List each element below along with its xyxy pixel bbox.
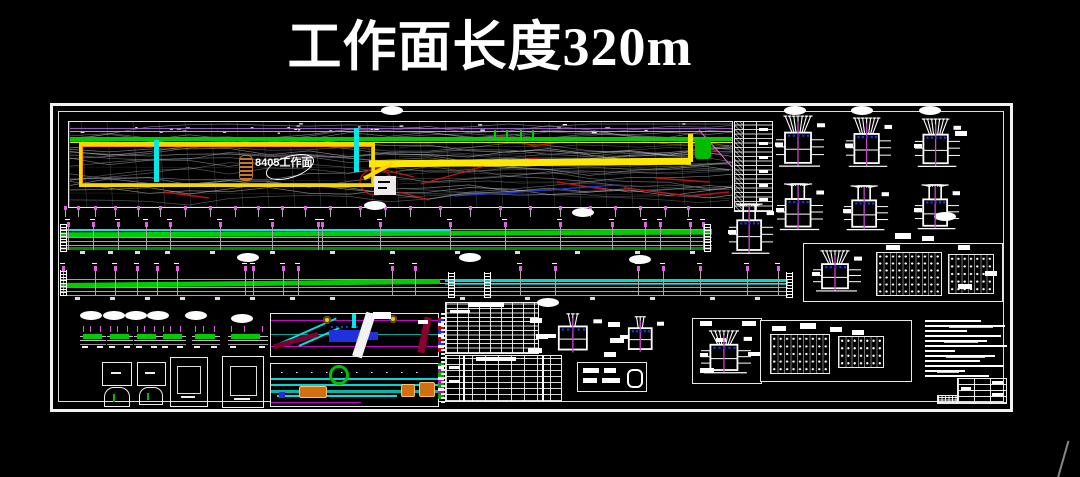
borehole-head [699, 266, 702, 271]
stratigraphic-column-table [734, 121, 773, 212]
borehole-label [143, 219, 148, 221]
footing-box [525, 297, 530, 300]
cad-application-canvas[interactable]: 工作面长度320m 8405工作面 [0, 0, 1080, 477]
support-section-detail [548, 313, 602, 355]
survey-tick-stem [640, 210, 641, 217]
strat-text-blob [759, 170, 768, 173]
parameter-table-1 [445, 302, 539, 354]
footing-box [690, 251, 695, 254]
survey-tick-head [77, 206, 80, 210]
callout-oval [125, 311, 147, 320]
borehole-head [271, 222, 274, 227]
green-tick [494, 130, 496, 137]
note-text-line [925, 375, 989, 377]
survey-tick-stem [560, 210, 561, 217]
green-tick [520, 130, 522, 137]
survey-tick-stem [615, 210, 616, 217]
green-ring [329, 365, 349, 385]
footing-box [710, 297, 715, 300]
borehole-label [609, 219, 614, 221]
borehole-head [297, 266, 300, 271]
borehole-stem [638, 270, 639, 296]
footing-box [515, 251, 520, 254]
survey-tick-stem [65, 210, 66, 217]
support-section-detail [812, 250, 862, 294]
strat-text-blob [759, 156, 768, 159]
section1-floor-line [60, 247, 712, 250]
survey-tick-stem [282, 210, 283, 217]
footing-box [250, 297, 255, 300]
yellow-roller [323, 316, 331, 324]
mini-section-detail [228, 324, 268, 350]
borehole-head [611, 222, 614, 227]
callout-blob [922, 236, 934, 241]
footing-box [460, 297, 465, 300]
face-label: 8405工作面 [255, 154, 312, 170]
borehole-head [637, 266, 640, 271]
survey-tick-head [329, 206, 332, 210]
micro-text-dash [441, 333, 445, 335]
borehole-stem [253, 270, 254, 296]
borehole-stem [660, 226, 661, 250]
note-text-line [925, 350, 955, 352]
micro-text-dash [441, 349, 445, 351]
borehole-head [219, 222, 222, 227]
callout-oval [147, 311, 169, 320]
callout-oval [851, 106, 873, 115]
support-section-detail [845, 117, 892, 170]
note-text-line [925, 320, 981, 322]
support-section-detail [776, 183, 824, 233]
support-section-detail [914, 184, 960, 232]
note-text-line [937, 372, 959, 373]
borehole-label [700, 219, 705, 221]
note-text-line [925, 365, 1003, 367]
borehole-label [412, 263, 417, 265]
footing-box [165, 251, 170, 254]
callout-blob [608, 322, 620, 327]
survey-tick-head [529, 206, 532, 210]
borehole-head [504, 222, 507, 227]
mini-section-detail [192, 324, 220, 350]
survey-tick-stem [258, 210, 259, 217]
borehole-head [414, 266, 417, 271]
survey-tick-head [499, 206, 502, 210]
borehole-label [112, 263, 117, 265]
blue-boundary-line [68, 122, 70, 207]
micro-text-dash [441, 341, 445, 343]
borehole-stem [747, 270, 748, 296]
survey-tick-head [359, 206, 362, 210]
mini-section-detail [134, 324, 160, 350]
borehole-label [775, 263, 780, 265]
footing-box [455, 251, 460, 254]
borehole-stem [118, 226, 119, 250]
borehole-stem [645, 226, 646, 250]
coal-pillar-hatch [239, 155, 253, 181]
survey-tick-head [257, 206, 260, 210]
callout-oval [381, 106, 403, 115]
footing-box [80, 251, 85, 254]
borehole-label [115, 219, 120, 221]
callout-blob [772, 326, 786, 331]
callout-blob [604, 352, 616, 357]
footing-box [270, 251, 275, 254]
callout-blob [958, 245, 970, 250]
callout-oval [237, 253, 259, 262]
framed-detail-1 [170, 357, 208, 407]
title-block [957, 378, 1007, 404]
survey-tick-stem [185, 210, 186, 217]
borehole-stem [690, 226, 691, 250]
callout-oval [103, 311, 125, 320]
borehole-label [389, 263, 394, 265]
blue-block [279, 392, 285, 398]
survey-tick-head [559, 206, 562, 210]
survey-tick-stem [688, 210, 689, 217]
survey-tick-head [159, 206, 162, 210]
plan-note-box [374, 176, 396, 195]
callout-blob [830, 327, 842, 332]
callout-blob [886, 245, 900, 250]
survey-tick-head [614, 206, 617, 210]
micro-text-dash [441, 329, 445, 331]
borehole-stem [555, 270, 556, 296]
footing-box [330, 251, 335, 254]
footing-box [180, 297, 185, 300]
bolt-mesh-grid [770, 334, 830, 374]
survey-tick-stem [160, 210, 161, 217]
survey-tick-head [469, 206, 472, 210]
callout-blob [373, 312, 391, 319]
callout-blob [530, 318, 542, 323]
note-text-line [925, 330, 967, 332]
stray-line [1057, 441, 1069, 477]
borehole-stem [380, 226, 381, 250]
footing-box [590, 297, 595, 300]
borehole-head [136, 266, 139, 271]
orange-machine [299, 386, 327, 398]
callout-oval [784, 106, 806, 115]
scale-ruler [448, 272, 455, 298]
micro-text-dash [441, 373, 445, 375]
micro-text-dash [441, 361, 445, 363]
borehole-head [659, 222, 662, 227]
borehole-stem [505, 226, 506, 250]
equipment-layout-panel-lower [270, 363, 439, 407]
plan-view-panel: 8405工作面 [68, 121, 733, 208]
borehole-head [117, 222, 120, 227]
survey-tick-head [234, 206, 237, 210]
borehole-head [252, 266, 255, 271]
borehole-head [156, 266, 159, 271]
footing-box [210, 251, 215, 254]
support-section-detail [700, 330, 752, 376]
mouse-icon [627, 369, 643, 388]
survey-tick-stem [410, 210, 411, 217]
green-cut-area [695, 139, 711, 159]
survey-tick-stem [440, 210, 441, 217]
micro-text-dash [441, 397, 445, 399]
borehole-label [154, 263, 159, 265]
micro-text-dash [441, 313, 445, 315]
borehole-head [67, 222, 70, 227]
survey-tick-stem [530, 210, 531, 217]
callout-oval [537, 298, 559, 307]
borehole-head [554, 266, 557, 271]
equipment-layout-panel-upper [270, 313, 439, 357]
note-text-line [925, 335, 1001, 337]
borehole-stem [245, 270, 246, 296]
micro-text-dash [441, 353, 445, 355]
footing-box [755, 297, 760, 300]
survey-tick-stem [95, 210, 96, 217]
borehole-head [689, 222, 692, 227]
borehole-label [517, 263, 522, 265]
borehole-stem [115, 270, 116, 296]
survey-tick-head [114, 206, 117, 210]
green-tick [532, 130, 534, 137]
survey-tick-head [409, 206, 412, 210]
borehole-label [250, 263, 255, 265]
footing-box [145, 297, 150, 300]
borehole-stem [663, 270, 664, 296]
mini-section-detail [80, 324, 106, 350]
section2-teal-band [445, 279, 788, 282]
callout-blob [528, 348, 542, 353]
callout-oval [572, 208, 594, 217]
micro-text-dash [441, 393, 445, 395]
framed-detail-2 [222, 356, 264, 408]
survey-tick-stem [305, 210, 306, 217]
borehole-label [557, 219, 562, 221]
borehole-label [90, 219, 95, 221]
cyan-crosscut-2 [354, 128, 359, 172]
footing-box [110, 297, 115, 300]
survey-tick-head [184, 206, 187, 210]
strat-text-blob [759, 198, 768, 201]
borehole-label [502, 219, 507, 221]
borehole-stem [700, 270, 701, 296]
footing-box [135, 251, 140, 254]
survey-tick-head [209, 206, 212, 210]
borehole-label [167, 219, 172, 221]
survey-tick-stem [665, 210, 666, 217]
borehole-head [321, 222, 324, 227]
footing-box [108, 251, 113, 254]
borehole-stem [322, 226, 323, 250]
footing-box [650, 297, 655, 300]
note-text-line [925, 345, 1007, 347]
survey-tick-stem [330, 210, 331, 217]
borehole-label [242, 263, 247, 265]
support-section-detail [843, 185, 889, 233]
borehole-head [169, 222, 172, 227]
borehole-head [644, 222, 647, 227]
strat-text-blob [759, 128, 768, 131]
callout-blob [852, 330, 864, 335]
legend-box [577, 362, 647, 392]
scale-ruler [60, 270, 67, 296]
drawing-title: 工作面长度320m [150, 2, 830, 81]
callout-blob [536, 334, 548, 339]
borehole-head [662, 266, 665, 271]
strat-text-blob [759, 142, 768, 145]
green-tick [506, 130, 508, 137]
note-text-line [925, 360, 980, 362]
borehole-stem [68, 226, 69, 250]
borehole-label [319, 219, 324, 221]
micro-text-dash [441, 357, 445, 359]
borehole-label [134, 263, 139, 265]
survey-tick-stem [210, 210, 211, 217]
support-section-detail [620, 316, 664, 354]
micro-text-dash [441, 381, 445, 383]
borehole-head [391, 266, 394, 271]
survey-tick-stem [385, 210, 386, 217]
footing-box [390, 251, 395, 254]
survey-tick-stem [360, 210, 361, 217]
callout-blob [742, 321, 756, 326]
callout-oval [364, 201, 386, 210]
micro-text-dash [441, 325, 445, 327]
borehole-head [114, 266, 117, 271]
cyan-crosscut-1 [154, 140, 159, 182]
revision-table [937, 395, 959, 404]
borehole-label [744, 263, 749, 265]
borehole-head [559, 222, 562, 227]
survey-tick-head [639, 206, 642, 210]
micro-text-dash [441, 385, 445, 387]
borehole-head [746, 266, 749, 271]
bolt-mesh-grid [876, 252, 942, 296]
survey-tick-head [687, 206, 690, 210]
survey-tick-stem [470, 210, 471, 217]
orange-machine [401, 384, 415, 397]
borehole-stem [392, 270, 393, 296]
arch-detail-2 [139, 387, 163, 405]
note-text-line [949, 327, 993, 328]
borehole-label [60, 263, 65, 265]
borehole-stem [146, 226, 147, 250]
borehole-stem [157, 270, 158, 296]
workface-outline-loop [79, 143, 375, 187]
footing-box [215, 297, 220, 300]
survey-tick-stem [138, 210, 139, 217]
footing-box [290, 297, 295, 300]
borehole-label [552, 263, 557, 265]
footing-box [635, 251, 640, 254]
borehole-label [65, 219, 70, 221]
magenta-boundary-line [69, 131, 732, 132]
borehole-label [377, 219, 382, 221]
micro-text-dash [441, 365, 445, 367]
strat-text-blob [759, 184, 768, 187]
survey-tick-stem [78, 210, 79, 217]
scale-ruler [704, 224, 711, 252]
borehole-stem [520, 270, 521, 296]
arch-detail-1 [104, 387, 130, 407]
orange-machine [419, 382, 435, 397]
callout-blob [800, 323, 816, 329]
micro-text-dash [441, 369, 445, 371]
borehole-label [642, 219, 647, 221]
callout-blob [895, 233, 911, 239]
survey-tick-stem [235, 210, 236, 217]
survey-tick-head [281, 206, 284, 210]
mini-section-detail [107, 324, 133, 350]
borehole-label [447, 219, 452, 221]
borehole-head [449, 222, 452, 227]
detail-box-1 [102, 362, 132, 386]
micro-text-dash [441, 389, 445, 391]
bolt-mesh-grid [838, 336, 884, 368]
survey-tick-head [137, 206, 140, 210]
borehole-head [244, 266, 247, 271]
borehole-stem [137, 270, 138, 296]
green-roadway-line [69, 137, 732, 141]
borehole-stem [415, 270, 416, 296]
borehole-head [282, 266, 285, 271]
borehole-head [777, 266, 780, 271]
section2-teal-line [445, 284, 788, 285]
callout-oval [185, 311, 207, 320]
support-section-detail [914, 118, 961, 170]
callout-blob [418, 320, 428, 324]
callout-oval [231, 314, 253, 323]
scale-ruler [484, 272, 491, 298]
bolt-mesh-grid [948, 254, 994, 294]
survey-tick-head [664, 206, 667, 210]
color-scale-strip [438, 318, 444, 352]
mini-section-detail [160, 324, 186, 350]
micro-text-dash [441, 321, 445, 323]
borehole-stem [318, 226, 319, 250]
borehole-head [519, 266, 522, 271]
support-section-detail [775, 115, 825, 170]
borehole-label [295, 263, 300, 265]
borehole-stem [170, 226, 171, 250]
borehole-label [687, 219, 692, 221]
borehole-head [317, 222, 320, 227]
survey-tick-head [94, 206, 97, 210]
borehole-head [176, 266, 179, 271]
borehole-head [379, 222, 382, 227]
borehole-stem [93, 226, 94, 250]
borehole-stem [450, 226, 451, 250]
survey-tick-stem [500, 210, 501, 217]
survey-tick-head [304, 206, 307, 210]
micro-text-dash [441, 401, 445, 403]
footing-box [330, 297, 335, 300]
scale-ruler [786, 272, 793, 298]
micro-text-dash [441, 377, 445, 379]
callout-oval [629, 255, 651, 264]
support-section-detail [728, 203, 774, 257]
micro-text-dash [441, 345, 445, 347]
borehole-label [217, 219, 222, 221]
survey-tick-head [64, 206, 67, 210]
borehole-label [174, 263, 179, 265]
survey-tick-head [439, 206, 442, 210]
borehole-label [280, 263, 285, 265]
borehole-label [269, 219, 274, 221]
borehole-label [660, 263, 665, 265]
borehole-head [94, 266, 97, 271]
note-text-line [946, 357, 985, 358]
detail-box-2 [137, 362, 166, 386]
callout-blob [700, 321, 712, 326]
